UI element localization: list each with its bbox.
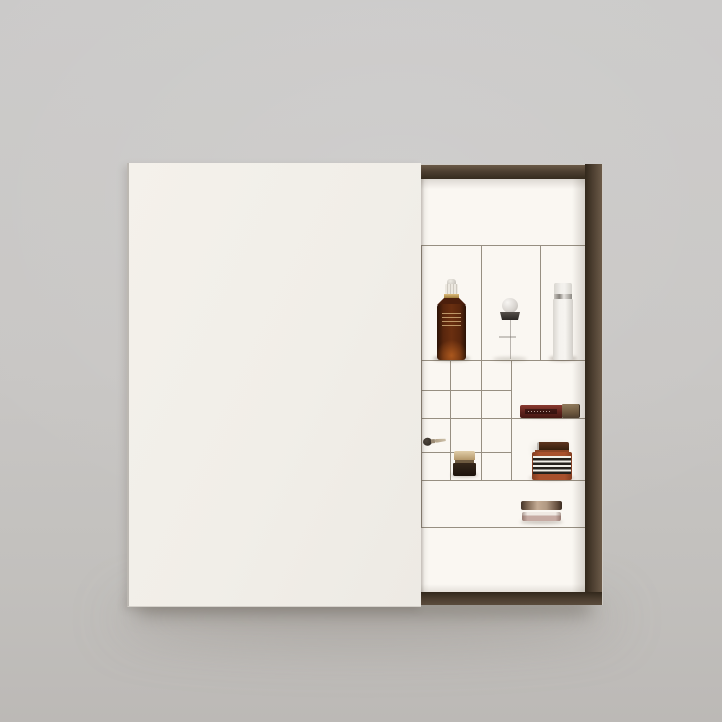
brush-ferrule bbox=[431, 439, 435, 443]
perfume-sphere-cap bbox=[502, 298, 518, 313]
divider-line bbox=[481, 245, 482, 480]
divider-line bbox=[421, 418, 585, 419]
tray-frame-top bbox=[419, 164, 603, 180]
compact-duo bbox=[521, 501, 562, 522]
compact-top bbox=[521, 501, 562, 510]
tray-frame-right bbox=[585, 164, 603, 605]
divider-line bbox=[421, 390, 511, 391]
divider-line bbox=[421, 527, 585, 528]
interior-top-shade bbox=[421, 179, 585, 189]
scene bbox=[0, 0, 722, 722]
divider-line bbox=[421, 480, 585, 481]
perfume-dip-tube bbox=[510, 320, 511, 359]
divider-line bbox=[450, 360, 451, 480]
tray-frame-bottom bbox=[419, 592, 602, 605]
striped-jar-label bbox=[533, 456, 571, 474]
interior-right-shade bbox=[572, 179, 585, 592]
serum-label bbox=[442, 313, 461, 328]
perfume-bottle bbox=[498, 298, 523, 360]
divider-line bbox=[511, 360, 512, 480]
lip-gloss bbox=[520, 404, 579, 418]
lip-gloss-label bbox=[528, 411, 552, 412]
pump-bottle bbox=[553, 283, 573, 360]
perfume-label bbox=[499, 336, 516, 338]
serum-gold-collar bbox=[444, 294, 459, 298]
box-lid bbox=[127, 163, 421, 607]
divider-line bbox=[540, 245, 541, 360]
pump-cap bbox=[554, 283, 572, 294]
brush-handle bbox=[435, 438, 446, 443]
lid-cast-shadow bbox=[421, 179, 429, 592]
striped-jar bbox=[530, 442, 574, 480]
perfume-collar bbox=[500, 312, 520, 320]
interior-bottom-shade bbox=[421, 584, 585, 592]
serum-bottle bbox=[437, 279, 466, 360]
tray-interior bbox=[421, 179, 585, 592]
compact-bottom bbox=[522, 512, 561, 521]
pump-body bbox=[553, 299, 573, 360]
divider-line bbox=[421, 245, 585, 246]
mini-jar-body bbox=[453, 463, 476, 476]
mini-jar bbox=[452, 451, 477, 476]
serum-dropper-cap bbox=[445, 284, 458, 294]
mini-jar-lid bbox=[454, 451, 475, 460]
